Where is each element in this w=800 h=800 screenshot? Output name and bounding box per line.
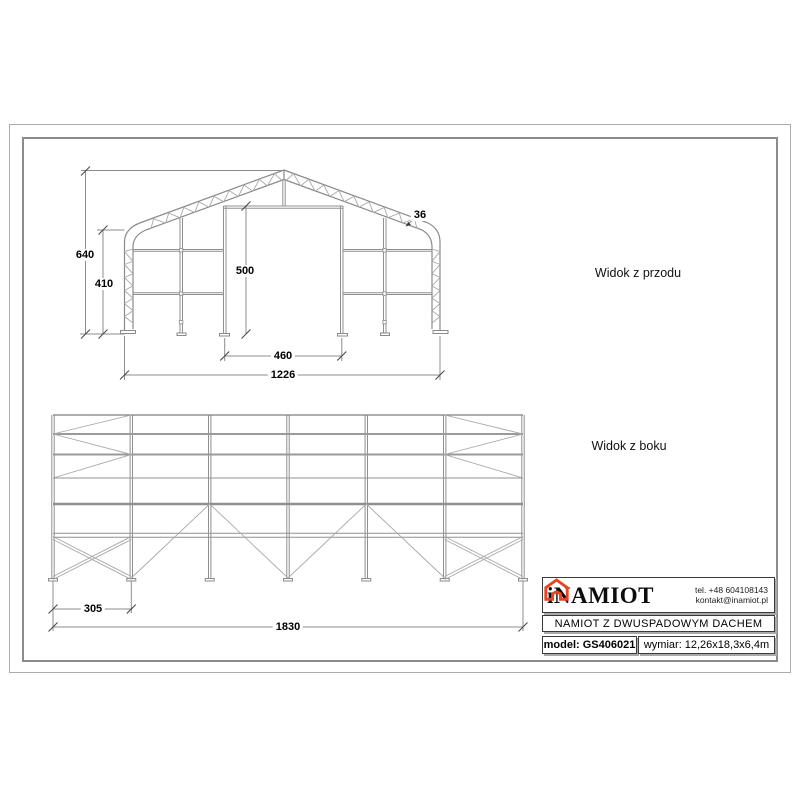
model-cell: model: GS406021 (542, 636, 637, 654)
phone-text: tel. +48 604108143 (695, 585, 768, 596)
contact-info: tel. +48 604108143 kontakt@inamiot.pl (695, 585, 770, 606)
title-block: iNAMIOT tel. +48 604108143 kontakt@inami… (542, 577, 779, 658)
side-bracing (53, 415, 523, 580)
email-text: kontakt@inamiot.pl (695, 595, 768, 606)
front-view-label: Widok z przodu (595, 266, 681, 280)
tent-logo-icon (543, 578, 570, 601)
model-label: model: (544, 639, 580, 651)
size-cell: wymiar: 12,26x18,3x6,4m (638, 636, 775, 654)
brand-logo: iNAMIOT (547, 584, 654, 607)
wall-girts (133, 249, 432, 324)
title-block-logo-row: iNAMIOT tel. +48 604108143 kontakt@inami… (542, 577, 775, 613)
size-label: wymiar: (644, 639, 682, 651)
door-frame (220, 180, 348, 336)
size-value: 12,26x18,3x6,4m (685, 639, 769, 651)
technical-drawing (0, 0, 800, 800)
dim-door-width-label: 460 (271, 350, 295, 362)
dimension-ticks (49, 167, 528, 632)
front-view-drawing (80, 170, 448, 380)
truss-web-lattice (125, 174, 441, 323)
dim-door-height-label: 500 (233, 265, 257, 277)
interior-columns (177, 218, 390, 336)
side-columns (49, 415, 528, 581)
dim-total-width-label: 1226 (268, 369, 298, 381)
side-view-drawing (49, 415, 528, 631)
dim-total-length-label: 1830 (273, 621, 303, 633)
side-view-label: Widok z boku (591, 439, 666, 453)
side-rails (53, 415, 523, 537)
dim-truss-depth-label: 36 (411, 209, 429, 221)
product-name: NAMIOT Z DWUSPADOWYM DACHEM (542, 615, 775, 632)
dim-wall-height-label: 410 (92, 278, 116, 290)
drawing-sheet: 640 410 500 460 1226 36 305 1830 Widok z… (0, 0, 800, 800)
dim-bay-width-label: 305 (81, 603, 105, 615)
dim-total-height-label: 640 (73, 249, 97, 261)
model-value: GS406021 (583, 639, 636, 651)
